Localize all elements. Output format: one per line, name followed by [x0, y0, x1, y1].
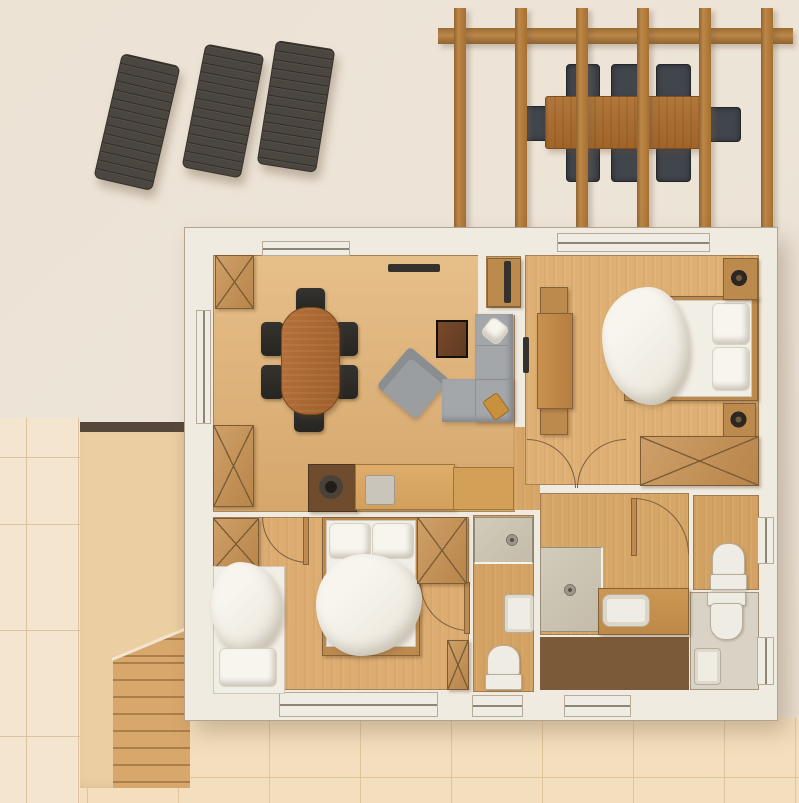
bed-pillow: [372, 523, 414, 559]
floor-plan-rendering: [0, 0, 799, 803]
outdoor-chair: [707, 107, 741, 142]
sofa-seam: [475, 380, 476, 421]
terrace-left-tiles: [0, 418, 80, 803]
window-bath-east: [757, 637, 774, 685]
toilet-tank: [485, 674, 522, 690]
wardrobe: [640, 436, 759, 486]
bed-pillow: [712, 303, 750, 345]
shower-head-icon: [564, 584, 576, 596]
window-bedroom2-south: [279, 692, 438, 717]
stool: [540, 287, 568, 315]
bed-pillow: [712, 347, 750, 391]
pergola-beam: [576, 8, 588, 229]
wardrobe: [215, 255, 254, 309]
toilet: [710, 603, 743, 640]
toilet: [712, 543, 745, 577]
pergola-beam: [454, 8, 466, 229]
window-bedroom-north: [557, 233, 710, 252]
deck-edge: [80, 422, 190, 432]
shower-head-icon: [506, 534, 518, 546]
wardrobe: [213, 425, 254, 507]
cooktop: [365, 475, 395, 505]
window-living-north: [262, 241, 350, 256]
desk: [537, 313, 573, 409]
toilet-tank: [710, 574, 747, 590]
pergola-beam: [515, 8, 527, 229]
sun-lounger-1: [93, 53, 180, 191]
toilet: [487, 645, 520, 677]
door-leaf: [303, 517, 309, 565]
washbasin: [694, 648, 721, 685]
wall-tv-bedroom: [523, 337, 529, 373]
lamp: [730, 269, 748, 287]
door-leaf: [464, 582, 470, 634]
wardrobe: [417, 517, 467, 584]
pergola-beam: [637, 8, 649, 229]
outdoor-dining-table: [545, 96, 703, 149]
stool: [540, 407, 568, 435]
wall-tv: [388, 264, 440, 272]
dining-table: [281, 307, 340, 415]
coffee-table: [436, 320, 468, 358]
outdoor-chair: [656, 146, 691, 182]
tv-screen: [504, 261, 511, 303]
pergola-beam: [761, 8, 773, 229]
pergola-beam: [699, 8, 711, 229]
washbasin: [602, 594, 650, 627]
sun-lounger-3: [257, 40, 336, 173]
sun-lounger-2: [182, 43, 265, 178]
bed-pillow: [219, 648, 277, 687]
window-bathmain-south: [564, 695, 631, 717]
cabinet: [447, 640, 469, 690]
sofa-seam: [475, 345, 512, 346]
sofa-seam: [475, 379, 512, 380]
door-leaf: [631, 498, 637, 556]
kitchen-counter-right: [453, 467, 514, 510]
pergola-beam-horizontal: [438, 28, 793, 44]
window-bath-south: [472, 695, 523, 717]
shower: [474, 517, 533, 564]
room-sauna-storage: [540, 637, 689, 690]
washbasin: [504, 594, 534, 633]
lamp: [730, 411, 747, 428]
window-wc-east: [757, 517, 774, 564]
window-living-west: [196, 310, 211, 424]
kitchen-sink-round: [319, 475, 343, 499]
